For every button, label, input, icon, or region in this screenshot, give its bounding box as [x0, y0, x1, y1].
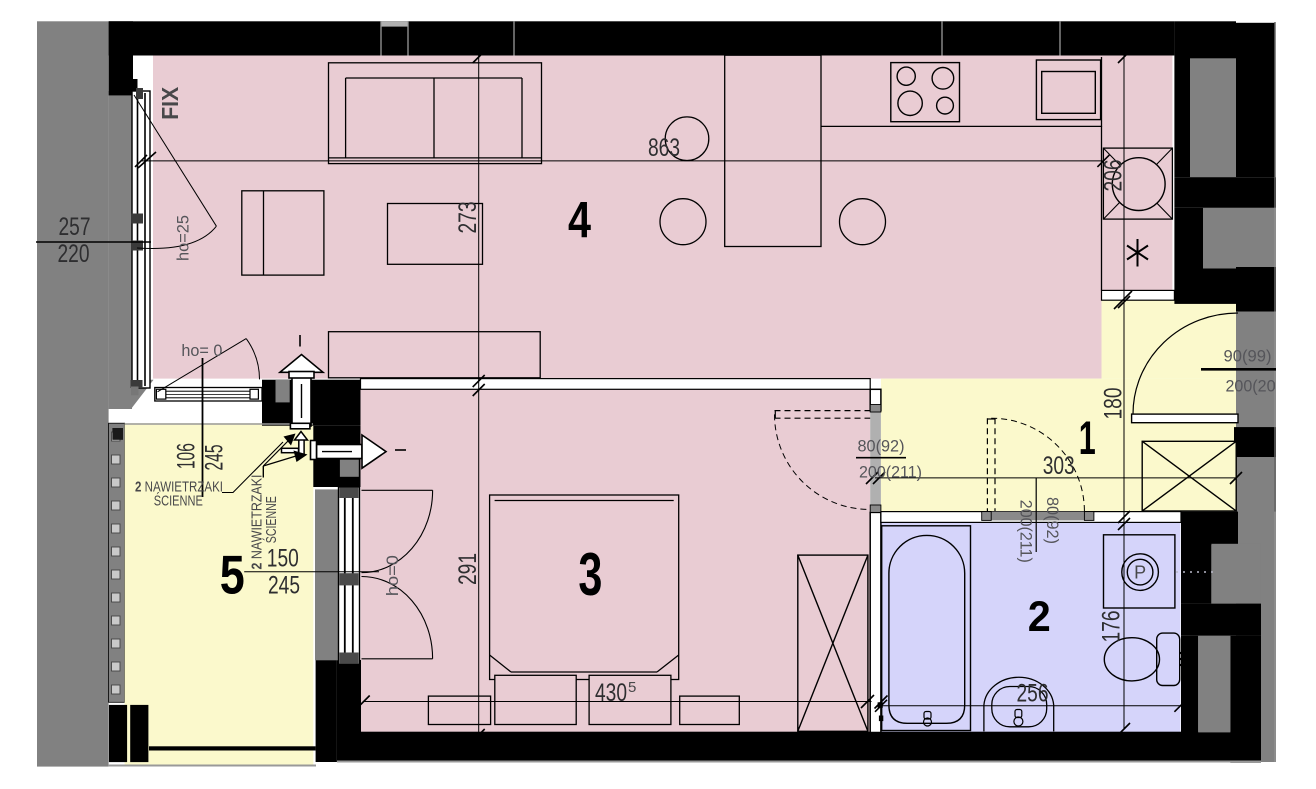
- svg-text:5: 5: [628, 679, 636, 696]
- svg-text:FIX: FIX: [157, 86, 183, 120]
- svg-text:430: 430: [595, 679, 627, 707]
- svg-text:80(92): 80(92): [1043, 497, 1062, 544]
- svg-text:ŚCIENNE: ŚCIENNE: [154, 492, 203, 510]
- svg-text:150: 150: [267, 545, 299, 573]
- svg-text:ŚCIENNE: ŚCIENNE: [262, 496, 280, 543]
- svg-text:90(99): 90(99): [1224, 347, 1272, 366]
- svg-text:291: 291: [454, 553, 482, 585]
- svg-text:245: 245: [201, 445, 229, 471]
- svg-text:106: 106: [173, 443, 201, 469]
- svg-text:2: 2: [1028, 593, 1051, 641]
- svg-text:245: 245: [268, 571, 300, 599]
- svg-text:303: 303: [1043, 452, 1075, 480]
- svg-text:180: 180: [1100, 388, 1128, 420]
- svg-text:ho=25: ho=25: [174, 215, 193, 261]
- svg-text:200(211): 200(211): [1017, 500, 1036, 563]
- svg-text:ho= 0: ho= 0: [181, 341, 222, 360]
- svg-text:P: P: [1134, 563, 1146, 583]
- svg-text:ho=0: ho=0: [383, 555, 402, 596]
- svg-text:4: 4: [568, 191, 592, 248]
- svg-text:220: 220: [58, 240, 90, 268]
- svg-text:3: 3: [578, 541, 602, 608]
- svg-text:176: 176: [1098, 611, 1126, 643]
- svg-text:273: 273: [454, 202, 482, 234]
- svg-text:206: 206: [1100, 160, 1128, 192]
- svg-text:257: 257: [59, 213, 91, 241]
- svg-text:200(211): 200(211): [859, 462, 922, 481]
- svg-text:863: 863: [648, 134, 680, 162]
- svg-text:80(92): 80(92): [858, 437, 905, 456]
- svg-text:1: 1: [1079, 411, 1096, 464]
- svg-text:256: 256: [1017, 679, 1049, 707]
- svg-text:200(20: 200(20: [1226, 377, 1276, 396]
- svg-text:5: 5: [220, 543, 245, 605]
